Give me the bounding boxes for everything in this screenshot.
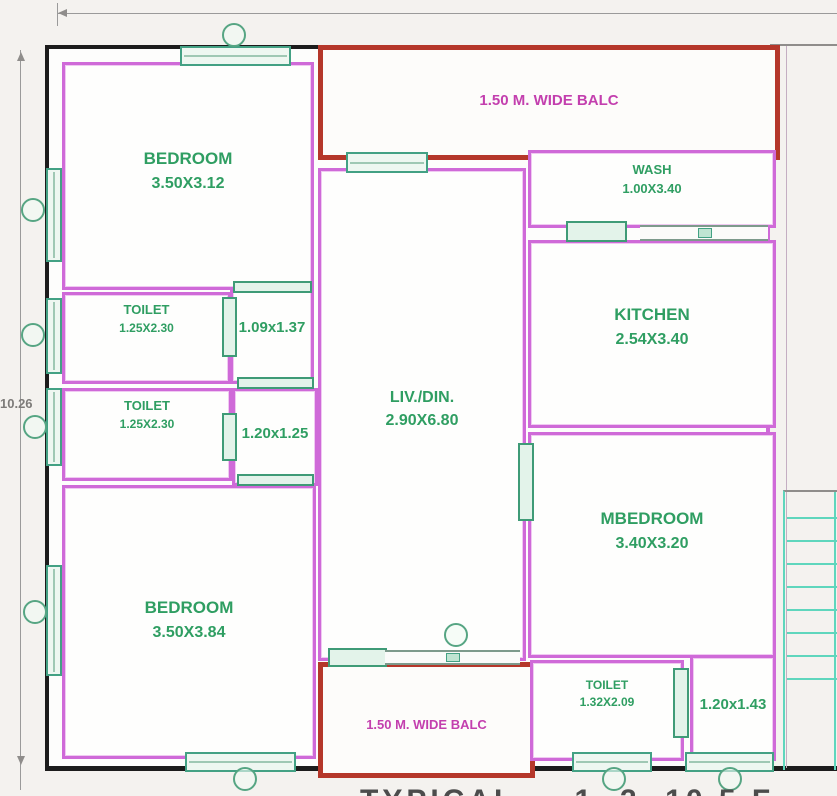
room-dims: 2.90X6.80: [321, 409, 523, 432]
room-dims: 1.00X3.40: [531, 180, 773, 199]
window-left-bedroom-bl: [46, 565, 62, 676]
room-name: KITCHEN: [531, 303, 773, 328]
room-living-dining: LIV./DIN. 2.90X6.80: [318, 168, 526, 661]
room-bedroom-top-left: BEDROOM 3.50X3.12: [62, 62, 314, 290]
right-extension-line: [770, 44, 837, 46]
balcony-bottom-label: 1.50 M. WIDE BALC: [323, 717, 530, 732]
window-kitchen-top: [640, 225, 768, 241]
door-toilet-br: [673, 668, 689, 738]
room-toilet-2: TOILET 1.25X2.30: [62, 388, 232, 481]
room-wash: WASH 1.00X3.40: [528, 150, 776, 228]
left-dimension-line: [20, 50, 21, 790]
floor-plan-canvas: 10.26 1.50 M. WIDE BALC 1.50 M. WIDE BAL…: [0, 0, 837, 796]
window-left-bedroom-tl: [46, 168, 62, 262]
room-master-bedroom: MBEDROOM 3.40X3.20: [528, 432, 776, 658]
room-dims: 3.50X3.12: [65, 172, 311, 195]
left-dimension-arrow-top-icon: [17, 52, 25, 61]
room-dims: 1.32X2.09: [533, 694, 681, 711]
room-kitchen: KITCHEN 2.54X3.40: [528, 240, 776, 428]
room-name: TOILET: [533, 677, 681, 694]
room-1-09x1-37: 1.09x1.37: [230, 287, 314, 384]
room-dims: 1.25X2.30: [65, 320, 228, 337]
top-dimension-arrow-icon: [58, 9, 67, 17]
room-toilet-1: TOILET 1.25X2.30: [62, 292, 231, 384]
staircase: [783, 490, 837, 770]
room-name: TOILET: [65, 301, 228, 320]
room-name: TOILET: [65, 397, 229, 416]
door-livdin-balcony: [328, 648, 387, 667]
room-toilet-bottom-right: TOILET 1.32X2.09: [530, 660, 684, 761]
grid-marker-icon: [23, 415, 47, 439]
room-name: WASH: [531, 161, 773, 180]
grid-marker-icon: [233, 767, 257, 791]
window-livdin-bottom: [385, 650, 520, 665]
room-name: BEDROOM: [65, 147, 311, 172]
grid-marker-icon: [222, 23, 246, 47]
vent-room-109-bottom: [237, 377, 314, 389]
door-toilet-1: [222, 297, 237, 357]
room-dims: 1.20x1.25: [235, 423, 315, 445]
room-name: BEDROOM: [65, 596, 313, 621]
staircase-treads: [787, 496, 837, 694]
room-dims: 1.09x1.37: [233, 317, 311, 339]
grid-marker-icon: [21, 323, 45, 347]
balcony-top: 1.50 M. WIDE BALC: [318, 45, 780, 160]
window-top-bedroom: [180, 46, 291, 66]
staircase-stringer: [834, 492, 836, 770]
door-wash-kitchen: [566, 221, 627, 242]
room-dims: 1.25X2.30: [65, 416, 229, 433]
grid-marker-icon: [23, 600, 47, 624]
window-livdin-top: [346, 152, 428, 173]
window-left-toilet-1: [46, 298, 62, 374]
top-dimension-line: [57, 13, 837, 14]
caption-text: TYPICAL — 1, 2, 10 5 F: [360, 783, 837, 796]
window-left-toilet-2: [46, 388, 62, 466]
grid-marker-icon: [21, 198, 45, 222]
vent-room-109-top: [233, 281, 312, 293]
left-dimension-arrow-bottom-icon: [17, 756, 25, 765]
room-name: MBEDROOM: [531, 507, 773, 532]
door-mbedroom: [518, 443, 534, 521]
room-dims: 3.50X3.84: [65, 621, 313, 644]
room-1-20x1-43: 1.20x1.43: [690, 655, 776, 761]
vent-room-120-bottom: [237, 474, 314, 486]
room-dims: 2.54X3.40: [531, 328, 773, 351]
room-dims: 3.40X3.20: [531, 532, 773, 555]
caption: TYPICAL — 1, 2, 10 5 F: [360, 783, 837, 796]
balcony-bottom: 1.50 M. WIDE BALC: [318, 662, 535, 778]
balcony-top-label: 1.50 M. WIDE BALC: [323, 92, 775, 109]
door-toilet-2: [222, 413, 237, 461]
left-total-dimension: 10.26: [0, 396, 33, 411]
room-name: LIV./DIN.: [321, 386, 523, 409]
room-1-20x1-25: 1.20x1.25: [232, 388, 318, 486]
room-dims: 1.20x1.43: [693, 694, 773, 716]
room-bedroom-bottom-left: BEDROOM 3.50X3.84: [62, 485, 316, 759]
grid-marker-icon: [444, 623, 468, 647]
